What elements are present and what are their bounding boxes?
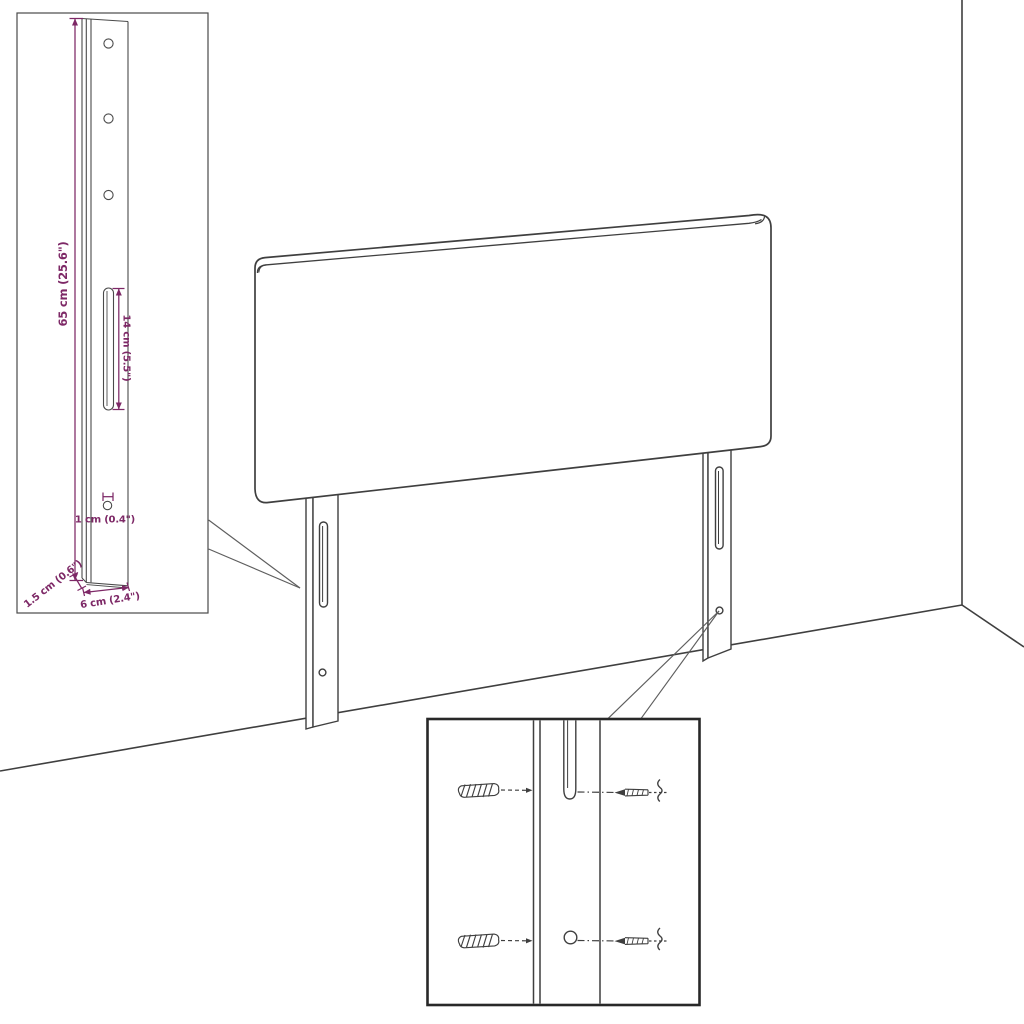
leader-line-mounting-b: [641, 611, 719, 719]
headboard-panel: [255, 215, 771, 503]
floor-line-right: [962, 605, 1024, 647]
headboard-diagram: 65 cm (25.6") 14 cm (5.5") 1 cm (0.4") 1…: [0, 0, 1024, 1024]
inset-leader-lines: [209, 520, 719, 719]
leg-slot: [716, 467, 724, 549]
dim-hole-label: 1 cm (0.4"): [75, 515, 135, 526]
leader-line-bracket-a: [209, 520, 300, 588]
leg-screw-hole: [319, 669, 326, 676]
headboard-leg-left: [306, 489, 338, 729]
leg-slot: [320, 522, 328, 607]
bracket-detail-inset: 65 cm (25.6") 14 cm (5.5") 1 cm (0.4") 1…: [17, 13, 208, 613]
headboard-outline: [255, 215, 771, 503]
headboard-leg-right: [703, 443, 731, 661]
dim-height-label: 65 cm (25.6"): [56, 241, 70, 326]
diagram-canvas: 65 cm (25.6") 14 cm (5.5") 1 cm (0.4") 1…: [0, 0, 1024, 1024]
mounting-detail-inset: [428, 719, 700, 1005]
leg-side-face: [306, 491, 313, 729]
leader-line-bracket-b: [209, 549, 300, 588]
leader-line-mounting-a: [608, 611, 719, 719]
dim-slot-label: 14 cm (5.5"): [121, 315, 132, 382]
